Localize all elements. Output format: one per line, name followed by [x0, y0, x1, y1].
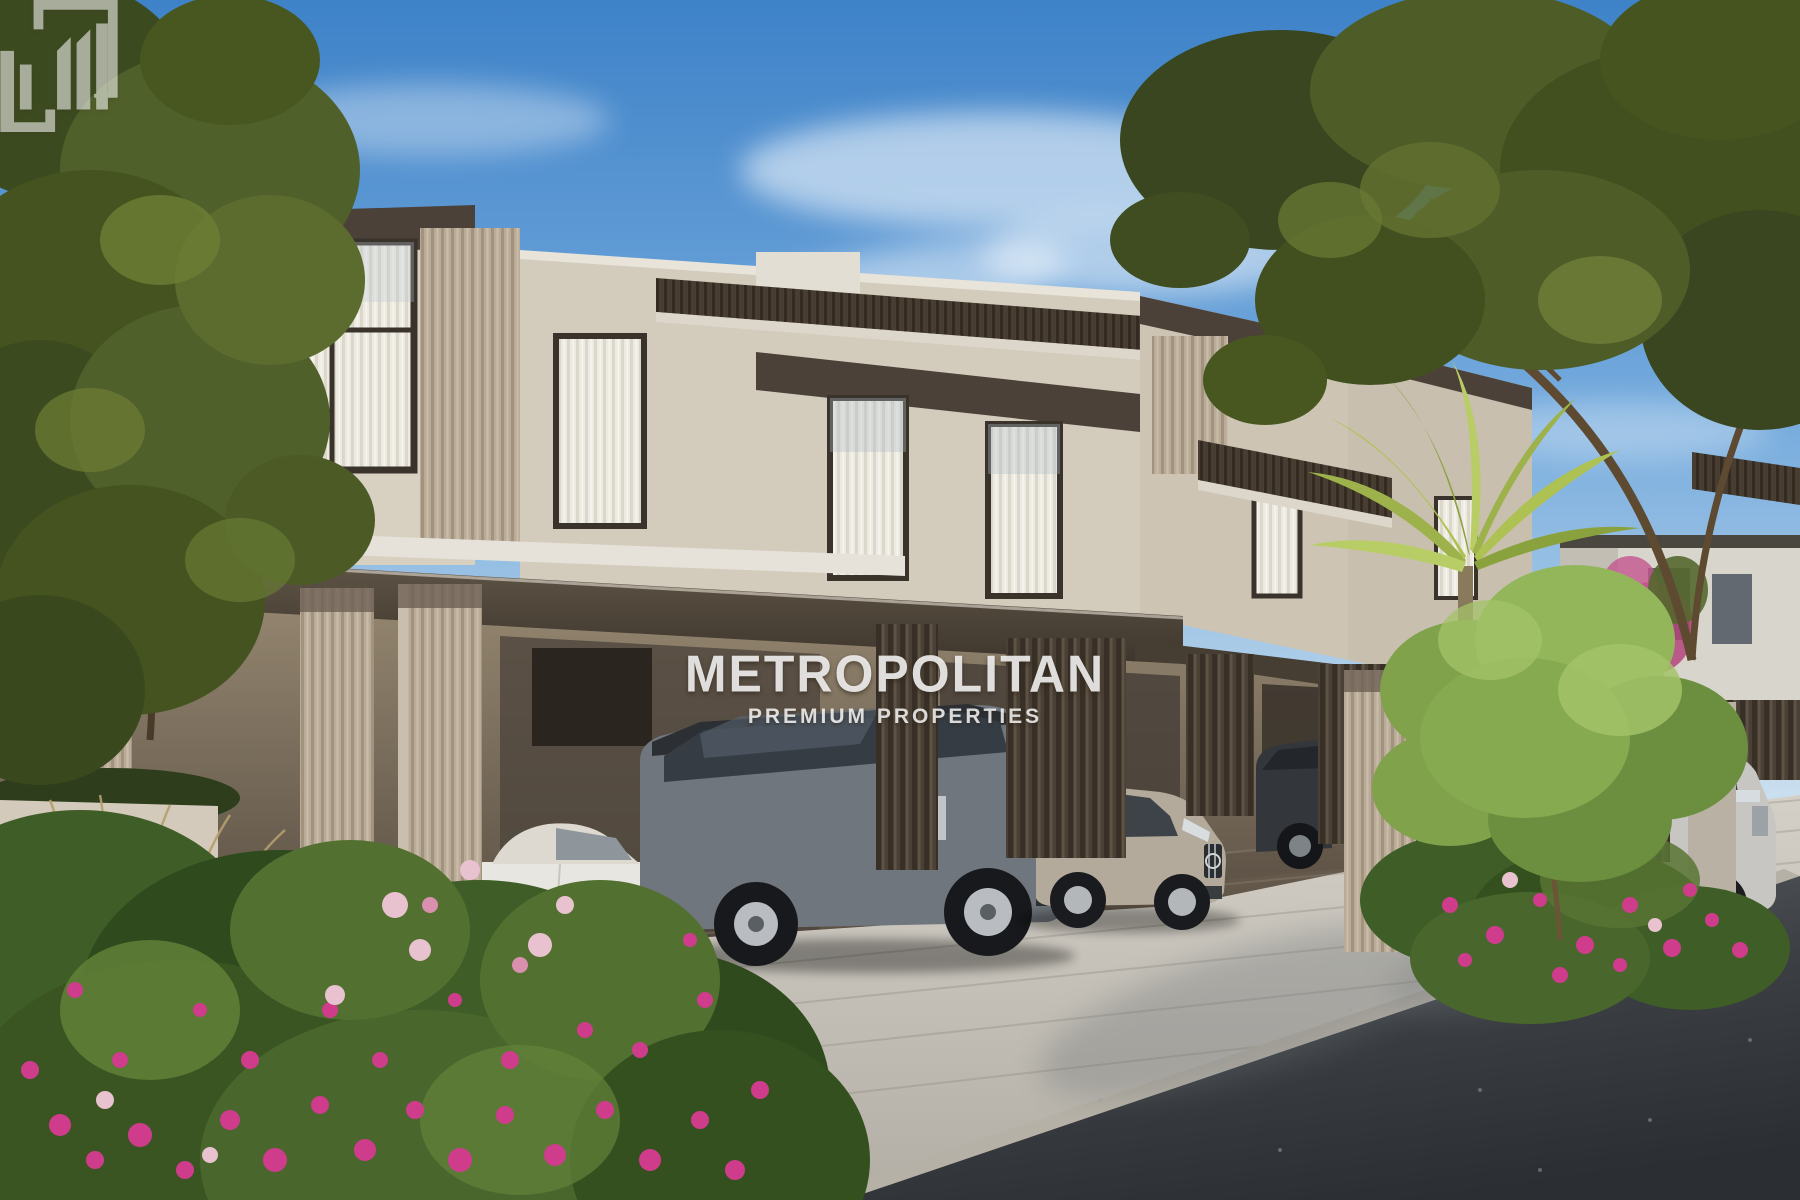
ribbed-panel-left: [420, 228, 520, 546]
townhouse-render-photo: METROPOLITAN PREMIUM PROPERTIES: [0, 0, 1800, 1200]
slat-pillar: [876, 624, 938, 870]
render-scene-canvas: [0, 0, 1800, 1200]
slat-wall: [1006, 638, 1126, 858]
